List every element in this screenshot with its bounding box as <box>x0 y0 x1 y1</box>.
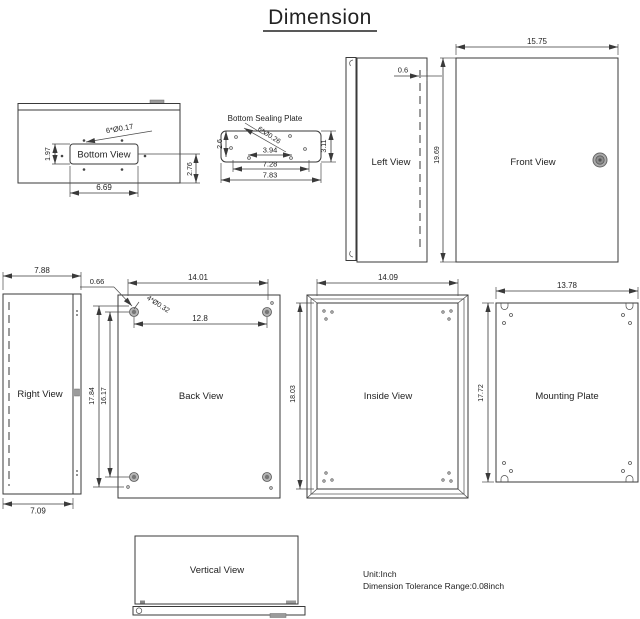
bottom-dim-height: 1.97 <box>45 147 52 161</box>
sealing-dim-mid: 7.28 <box>263 160 278 169</box>
back-dim-span-h: 17.84 <box>89 387 96 405</box>
sealing-dim-inner: 3.94 <box>263 146 278 155</box>
front-dim-width: 15.75 <box>527 37 548 46</box>
bottom-view-label: Bottom View <box>77 150 130 161</box>
bottom-view: 6*Ø0.17 Bottom View 1.97 6.69 2.76 <box>18 100 200 197</box>
left-view-label: Left View <box>372 157 411 168</box>
bottom-view-outline <box>18 110 180 183</box>
door-lock-icon <box>593 153 607 167</box>
right-dim-top: 7.88 <box>34 266 50 275</box>
inside-dim-width: 14.09 <box>378 273 399 282</box>
left-view-hinge-bottom <box>350 251 353 257</box>
vertical-view-hinge-pin <box>136 608 142 614</box>
right-dim-bottom: 7.09 <box>30 507 46 516</box>
vertical-view-bottom-tab <box>270 614 286 618</box>
unit-note: Unit:Inch <box>363 569 397 579</box>
back-dim-inner-h: 16.17 <box>101 387 108 405</box>
sealing-dim-height: 3.11 <box>321 139 328 152</box>
inside-view-label: Inside View <box>364 391 413 402</box>
notes: Unit:Inch Dimension Tolerance Range:0.08… <box>363 569 504 591</box>
mounting-plate-label: Mounting Plate <box>535 391 598 402</box>
bottom-view-lid-strip <box>18 104 180 111</box>
left-view: 0.6 Left View 19.69 <box>346 58 456 263</box>
bottom-holes-callout: 6*Ø0.17 <box>105 122 134 135</box>
right-view-hinge-marks <box>75 310 80 476</box>
bottom-view-latch-tab <box>150 100 164 104</box>
sealing-dim-edge: 2.6 <box>217 139 224 149</box>
bottom-dim-offset: 2.76 <box>187 162 194 176</box>
inside-dim-height: 18.03 <box>290 385 297 403</box>
mounting-plate-view: 13.78 17.72 Mounting Plate <box>478 281 638 482</box>
sealing-dim-outer: 7.83 <box>263 171 278 180</box>
back-view: 0.66 14.01 4*Ø0.32 12.8 17.84 16.17 Back… <box>80 273 280 498</box>
vertical-view: Vertical View <box>133 536 305 618</box>
dimension-drawing-page: Dimension 6*Ø0.17 Bottom View 1.97 6.69 … <box>0 0 640 619</box>
back-dim-span-w: 14.01 <box>188 273 209 282</box>
vertical-view-right-mark <box>286 601 296 604</box>
front-view-label: Front View <box>510 157 555 168</box>
mounting-dim-width: 13.78 <box>557 281 578 290</box>
back-holes-callout: 4*Ø0.32 <box>145 295 170 315</box>
left-view-hinge-top <box>350 60 353 66</box>
sealing-holes-callout: 6*Ø0.26 <box>256 126 281 146</box>
sealing-plate-label: Bottom Sealing Plate <box>228 114 303 123</box>
mounting-dim-height: 17.72 <box>478 384 485 402</box>
page-title: Dimension <box>263 6 377 31</box>
vertical-view-left-mark <box>140 601 145 604</box>
bottom-sealing-plate-view: Bottom Sealing Plate 2.6 6*Ø0.26 3.94 7.… <box>217 114 336 183</box>
right-view: 7.88 Right View 7.09 <box>3 266 81 516</box>
back-view-label: Back View <box>179 391 223 402</box>
inside-view: 14.09 18.03 Inside View <box>290 273 468 498</box>
dimension-drawing: Dimension 6*Ø0.17 Bottom View 1.97 6.69 … <box>0 0 640 619</box>
front-view: 15.75 Front View <box>456 37 618 262</box>
tolerance-note: Dimension Tolerance Range:0.08inch <box>363 581 504 591</box>
left-dim-door: 0.6 <box>398 66 408 75</box>
page-title-text: Dimension <box>268 6 372 29</box>
bottom-dim-width: 6.69 <box>96 183 112 192</box>
back-dim-inner-w: 12.8 <box>192 314 208 323</box>
front-dim-height: 19.69 <box>434 146 441 164</box>
vertical-view-label: Vertical View <box>190 565 244 576</box>
back-offset-leader <box>114 287 132 306</box>
back-dim-offset: 0.66 <box>90 277 105 286</box>
right-view-label: Right View <box>17 389 62 400</box>
left-view-hinge-strip <box>346 58 356 261</box>
